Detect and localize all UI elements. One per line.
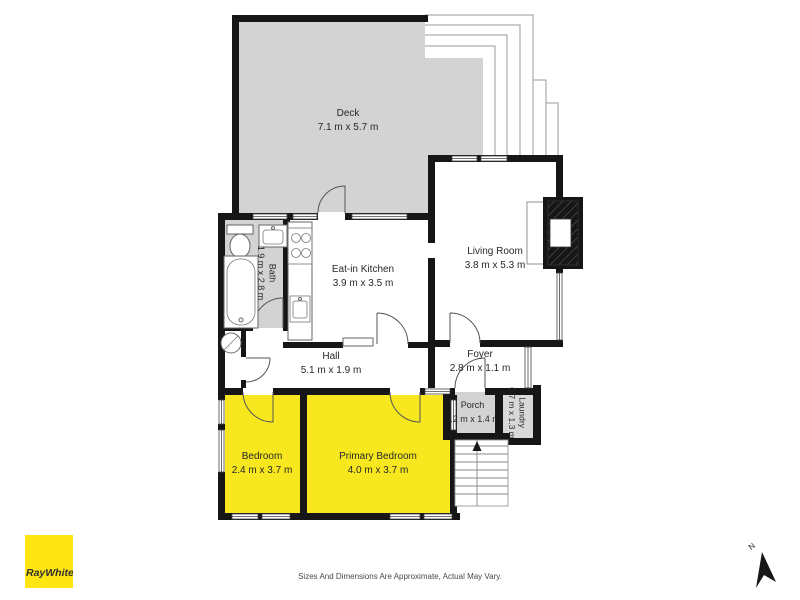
foyer-label: Foyer 2.8 m x 1.1 m	[450, 348, 511, 376]
toilet-bowl-icon	[230, 234, 250, 258]
kitchen-door	[377, 313, 408, 344]
kitchen-fixtures	[288, 222, 312, 340]
primary-bedroom-label: Primary Bedroom 4.0 m x 3.7 m	[339, 450, 417, 478]
north-arrow-icon	[756, 552, 776, 588]
toilet-tank-icon	[227, 225, 253, 234]
eat-in-kitchen-label: Eat-in Kitchen 3.9 m x 3.5 m	[332, 263, 394, 291]
floorplan-drawing	[0, 0, 800, 600]
kitchen-slider-panel	[343, 338, 373, 346]
bath-label: Bath 1.9 m x 2.8 m	[255, 246, 278, 301]
floorplan-page: Deck 7.1 m x 5.7 m Eat-in Kitchen 3.9 m …	[0, 0, 800, 600]
laundry-label: Laundry 0.7 m x 1.3 m	[506, 387, 527, 439]
disclaimer-text: Sizes And Dimensions Are Approximate, Ac…	[0, 572, 800, 581]
living-room-door	[450, 313, 480, 343]
deck-label: Deck 7.1 m x 5.7 m	[318, 107, 379, 135]
hall-closet-door	[246, 358, 270, 382]
stairs	[455, 440, 508, 506]
bedroom-label: Bedroom 2.4 m x 3.7 m	[232, 450, 293, 478]
porch-label: Porch 1.2 m x 1.4 m	[450, 392, 495, 433]
hall-label: Hall 5.1 m x 1.9 m	[301, 350, 362, 378]
living-room-label: Living Room 3.8 m x 5.3 m	[465, 245, 526, 273]
bathtub-icon	[224, 256, 258, 328]
fireplace-icon	[527, 197, 583, 269]
